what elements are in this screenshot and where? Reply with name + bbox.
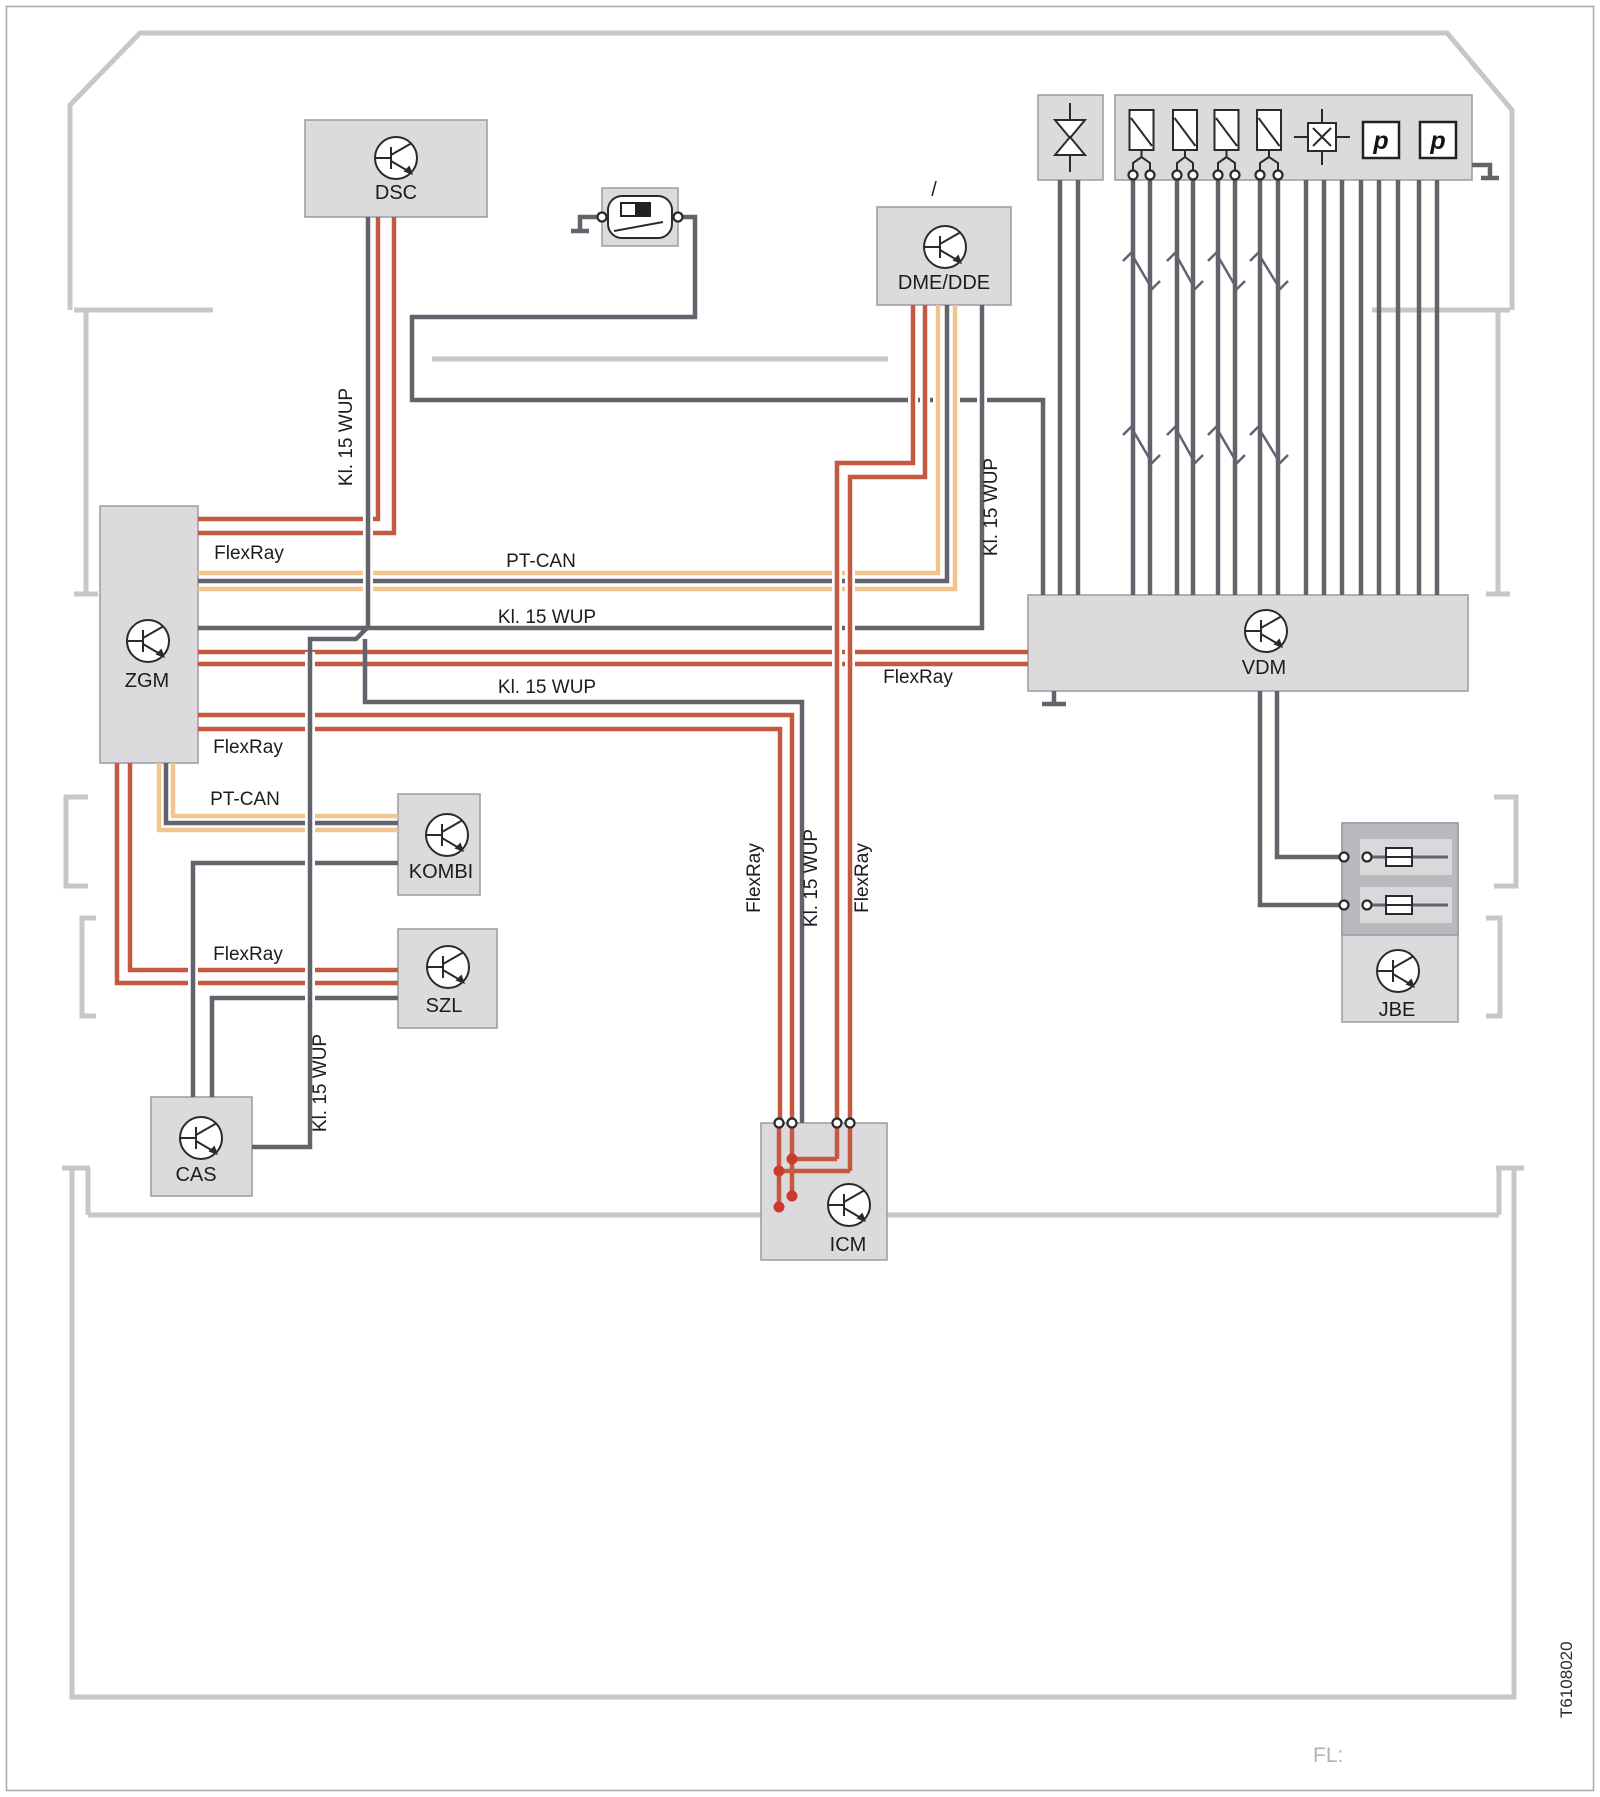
flexray-zgm-icm-1 — [198, 715, 792, 1123]
doc-number: T6108020 — [1557, 1641, 1576, 1718]
sensor-ground — [571, 217, 597, 231]
szl-label: SZL — [426, 995, 463, 1017]
ptcan-zgm-kombi-2 — [173, 763, 398, 816]
solenoid-block-box — [1115, 95, 1472, 180]
dsc-transistor-icon — [375, 137, 417, 179]
cas-transistor-icon — [180, 1117, 222, 1159]
dsc-label: DSC — [375, 182, 417, 204]
kl15-dsc-cas — [252, 217, 368, 1147]
bus-label-flexray-szl: FlexRay — [213, 944, 283, 965]
actuator-wires — [1060, 180, 1437, 595]
kombi-label: KOMBI — [409, 861, 473, 883]
icm-transistor-icon — [828, 1184, 870, 1226]
kombi-transistor-icon — [426, 814, 468, 856]
bus-label-ptcan-dme: PT-CAN — [506, 551, 576, 572]
vdm-label: VDM — [1242, 657, 1286, 679]
switch-sensor-icon — [608, 196, 672, 238]
pressure-label-1: p — [1372, 127, 1388, 155]
vdm-ground — [1042, 691, 1066, 704]
bus-labels: FlexRay PT-CAN Kl. 15 WUP FlexRay Kl. 15… — [210, 388, 1002, 1132]
icm-label: ICM — [830, 1234, 867, 1256]
flexray-zgm-icm-2 — [198, 729, 780, 1123]
bus-label-kl15-dme: Kl. 15 WUP — [498, 607, 596, 628]
block-ground — [1472, 165, 1499, 178]
bus-label-kl15-dsc: Kl. 15 WUP — [336, 388, 357, 486]
jbe-transistor-icon — [1377, 950, 1419, 992]
bus-label-kl15-icm-row: Kl. 15 WUP — [498, 677, 596, 698]
wire-vdm-jbe-1 — [1260, 691, 1342, 905]
dme-slash-label: / — [931, 179, 937, 201]
footer-fl-label: FL: — [1313, 1744, 1343, 1767]
bus-label-kl15-dme-vert: Kl. 15 WUP — [981, 458, 1002, 556]
kl15-kombi-cas — [193, 863, 398, 1097]
bus-label-flexray-icm-left: FlexRay — [744, 843, 765, 913]
dme-transistor-icon — [924, 226, 966, 268]
bus-label-flexray-icm: FlexRay — [213, 737, 283, 758]
bus-label-flexray-dsc: FlexRay — [214, 543, 284, 564]
bus-label-flexray-vdm: FlexRay — [883, 667, 953, 688]
bus-label-flexray-icm-right: FlexRay — [852, 843, 873, 913]
vdm-transistor-icon — [1245, 610, 1287, 652]
dme-label: DME/DDE — [898, 272, 990, 294]
zgm-transistor-icon — [127, 620, 169, 662]
cas-label: CAS — [175, 1164, 216, 1186]
wire-vdm-jbe-2 — [1277, 691, 1342, 857]
bus-label-ptcan-kombi: PT-CAN — [210, 789, 280, 810]
bus-label-kl15-icm-vert: Kl. 15 WUP — [801, 829, 822, 927]
bus-label-kl15-cas: Kl. 15 WUP — [310, 1034, 331, 1132]
pressure-label-2: p — [1429, 127, 1445, 155]
jbe-label: JBE — [1379, 999, 1416, 1021]
szl-transistor-icon — [427, 946, 469, 988]
wiring-diagram: DSC DME/DDE / ZGM KOMBI SZL CAS ICM VDM … — [0, 0, 1600, 1797]
zgm-label: ZGM — [125, 670, 169, 692]
